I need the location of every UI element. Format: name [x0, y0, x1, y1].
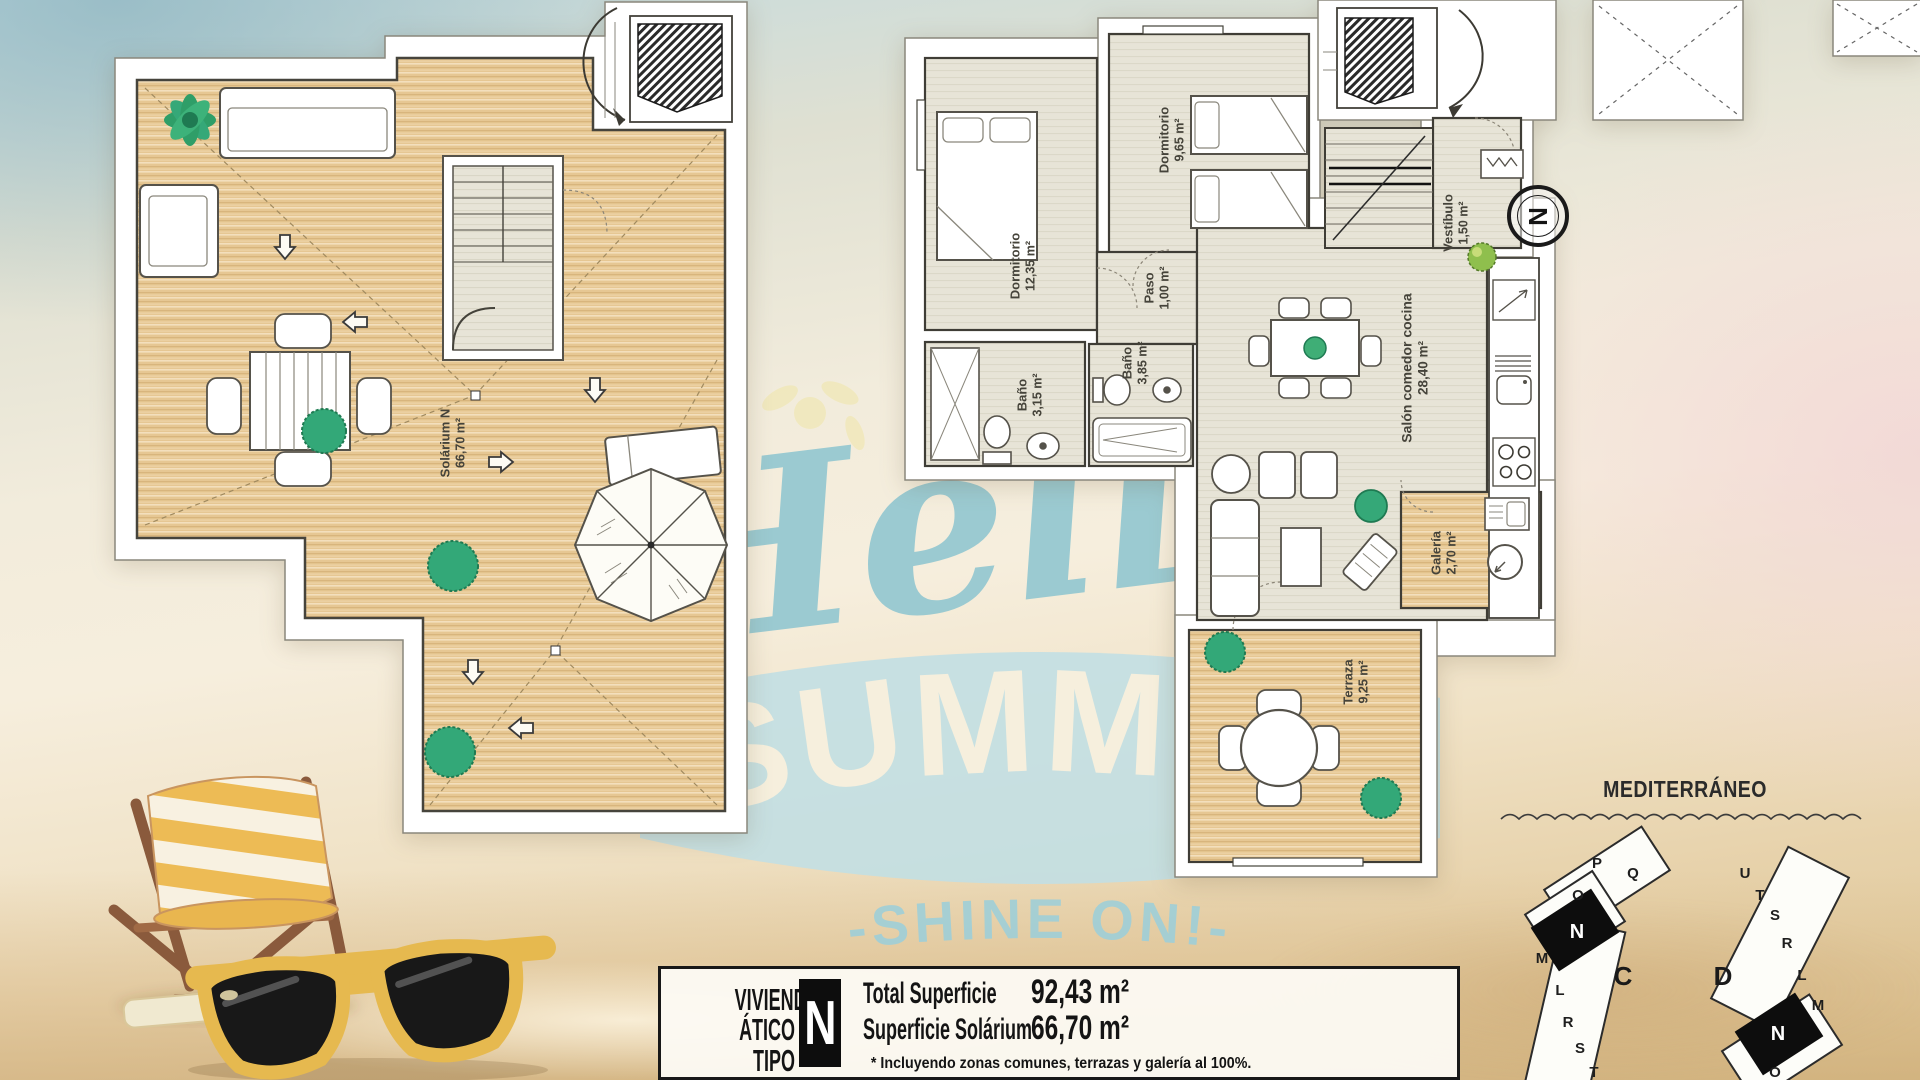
unit-title-line1: VIVIENDA	[735, 985, 795, 1015]
block-c-unit: O	[1572, 887, 1584, 904]
solarium-area-value: 66,70 m²	[1031, 1009, 1129, 1048]
block-d-label: D	[1714, 961, 1733, 991]
sunglasses-photo	[118, 922, 598, 1080]
apartment-stair	[1325, 128, 1433, 248]
total-area-value: 92,43 m²	[1031, 973, 1129, 1012]
entry-plant	[1468, 243, 1496, 271]
block-c-unit: P	[1592, 855, 1602, 872]
brochure-page: Hello SUMMER -SHINE ON!-	[0, 0, 1920, 1080]
room-label-dormitorio-1: Dormitorio12,35 m²	[1009, 233, 1038, 299]
block-c-unit: R	[1563, 1014, 1574, 1031]
unit-title-line2: ÁTICO TIPO	[735, 1015, 795, 1076]
block-c-label: C	[1614, 961, 1633, 991]
room-label-salon: Salón comedor cocina28,40 m²	[1400, 293, 1431, 442]
block-d-unit-highlighted: N	[1771, 1023, 1785, 1045]
block-d-unit: S	[1770, 907, 1780, 924]
block-d-unit: U	[1740, 865, 1751, 882]
room-label-solarium: Solárium N66,70 m²	[439, 409, 468, 478]
block-c-unit: T	[1589, 1064, 1598, 1080]
block-c-unit: S	[1575, 1040, 1585, 1057]
room-label-dormitorio-2: Dormitorio9,65 m²	[1158, 107, 1187, 173]
outdoor-armchair	[140, 185, 218, 277]
sea-label: MEDITERRÁNEO	[1524, 776, 1847, 803]
area-footnote: * Incluyendo zonas comunes, terrazas y g…	[871, 1055, 1191, 1073]
solarium-area-label: Superficie Solárium	[863, 1013, 964, 1047]
block-c-unit: L	[1555, 982, 1564, 999]
block-d-unit: M	[1812, 997, 1825, 1014]
deck-plant	[164, 94, 216, 146]
block-c-unit: M	[1536, 950, 1549, 967]
unit-title: VIVIENDA ÁTICO TIPO	[735, 985, 795, 1076]
north-compass-icon: N	[1507, 185, 1569, 247]
block-c-unit-highlighted: N	[1570, 921, 1584, 943]
svg-text:-SHINE ON!-: -SHINE ON!-	[844, 887, 1235, 960]
room-label-galeria: Galería2,70 m²	[1430, 531, 1459, 575]
unit-summary-box: VIVIENDA ÁTICO TIPO N Total Superficie 9…	[658, 966, 1460, 1080]
deck-drain	[551, 646, 560, 655]
room-label-vestibulo: Vestíbulo1,50 m²	[1442, 194, 1471, 252]
block-d-unit: L	[1797, 967, 1806, 984]
watermark-tagline-text: -SHINE ON!-	[844, 887, 1235, 960]
compass-letter: N	[1523, 207, 1554, 226]
room-label-terraza: Terraza9,25 m²	[1342, 659, 1371, 704]
block-c-unit: Q	[1627, 865, 1639, 882]
site-plan: MEDITERRÁNEO P Q O N M	[1495, 768, 1895, 1080]
total-area-row: Total Superficie 92,43 m²	[863, 973, 1167, 1012]
solarium-area-row: Superficie Solárium 66,70 m²	[863, 1009, 1167, 1048]
block-d-unit: T	[1755, 887, 1764, 904]
deck-drain	[471, 391, 480, 400]
room-label-bano-1: Baño3,15 m²	[1016, 373, 1045, 416]
block-d-unit: R	[1782, 935, 1793, 952]
block-d-unit: O	[1769, 1064, 1781, 1080]
unit-type-letter: N	[804, 988, 836, 1059]
outdoor-sofa	[220, 88, 395, 158]
total-area-label: Total Superficie	[863, 977, 964, 1011]
parasol-umbrella	[575, 469, 727, 621]
unit-type-badge: N	[799, 979, 841, 1067]
laundry-icon	[1481, 150, 1523, 178]
room-label-paso: Paso1,00 m²	[1143, 266, 1172, 309]
building-blocks-map: P Q O N M L R S T U T S R L M N O C D	[1495, 818, 1895, 1080]
room-label-bano-2: Baño3,85 m²	[1121, 341, 1150, 384]
